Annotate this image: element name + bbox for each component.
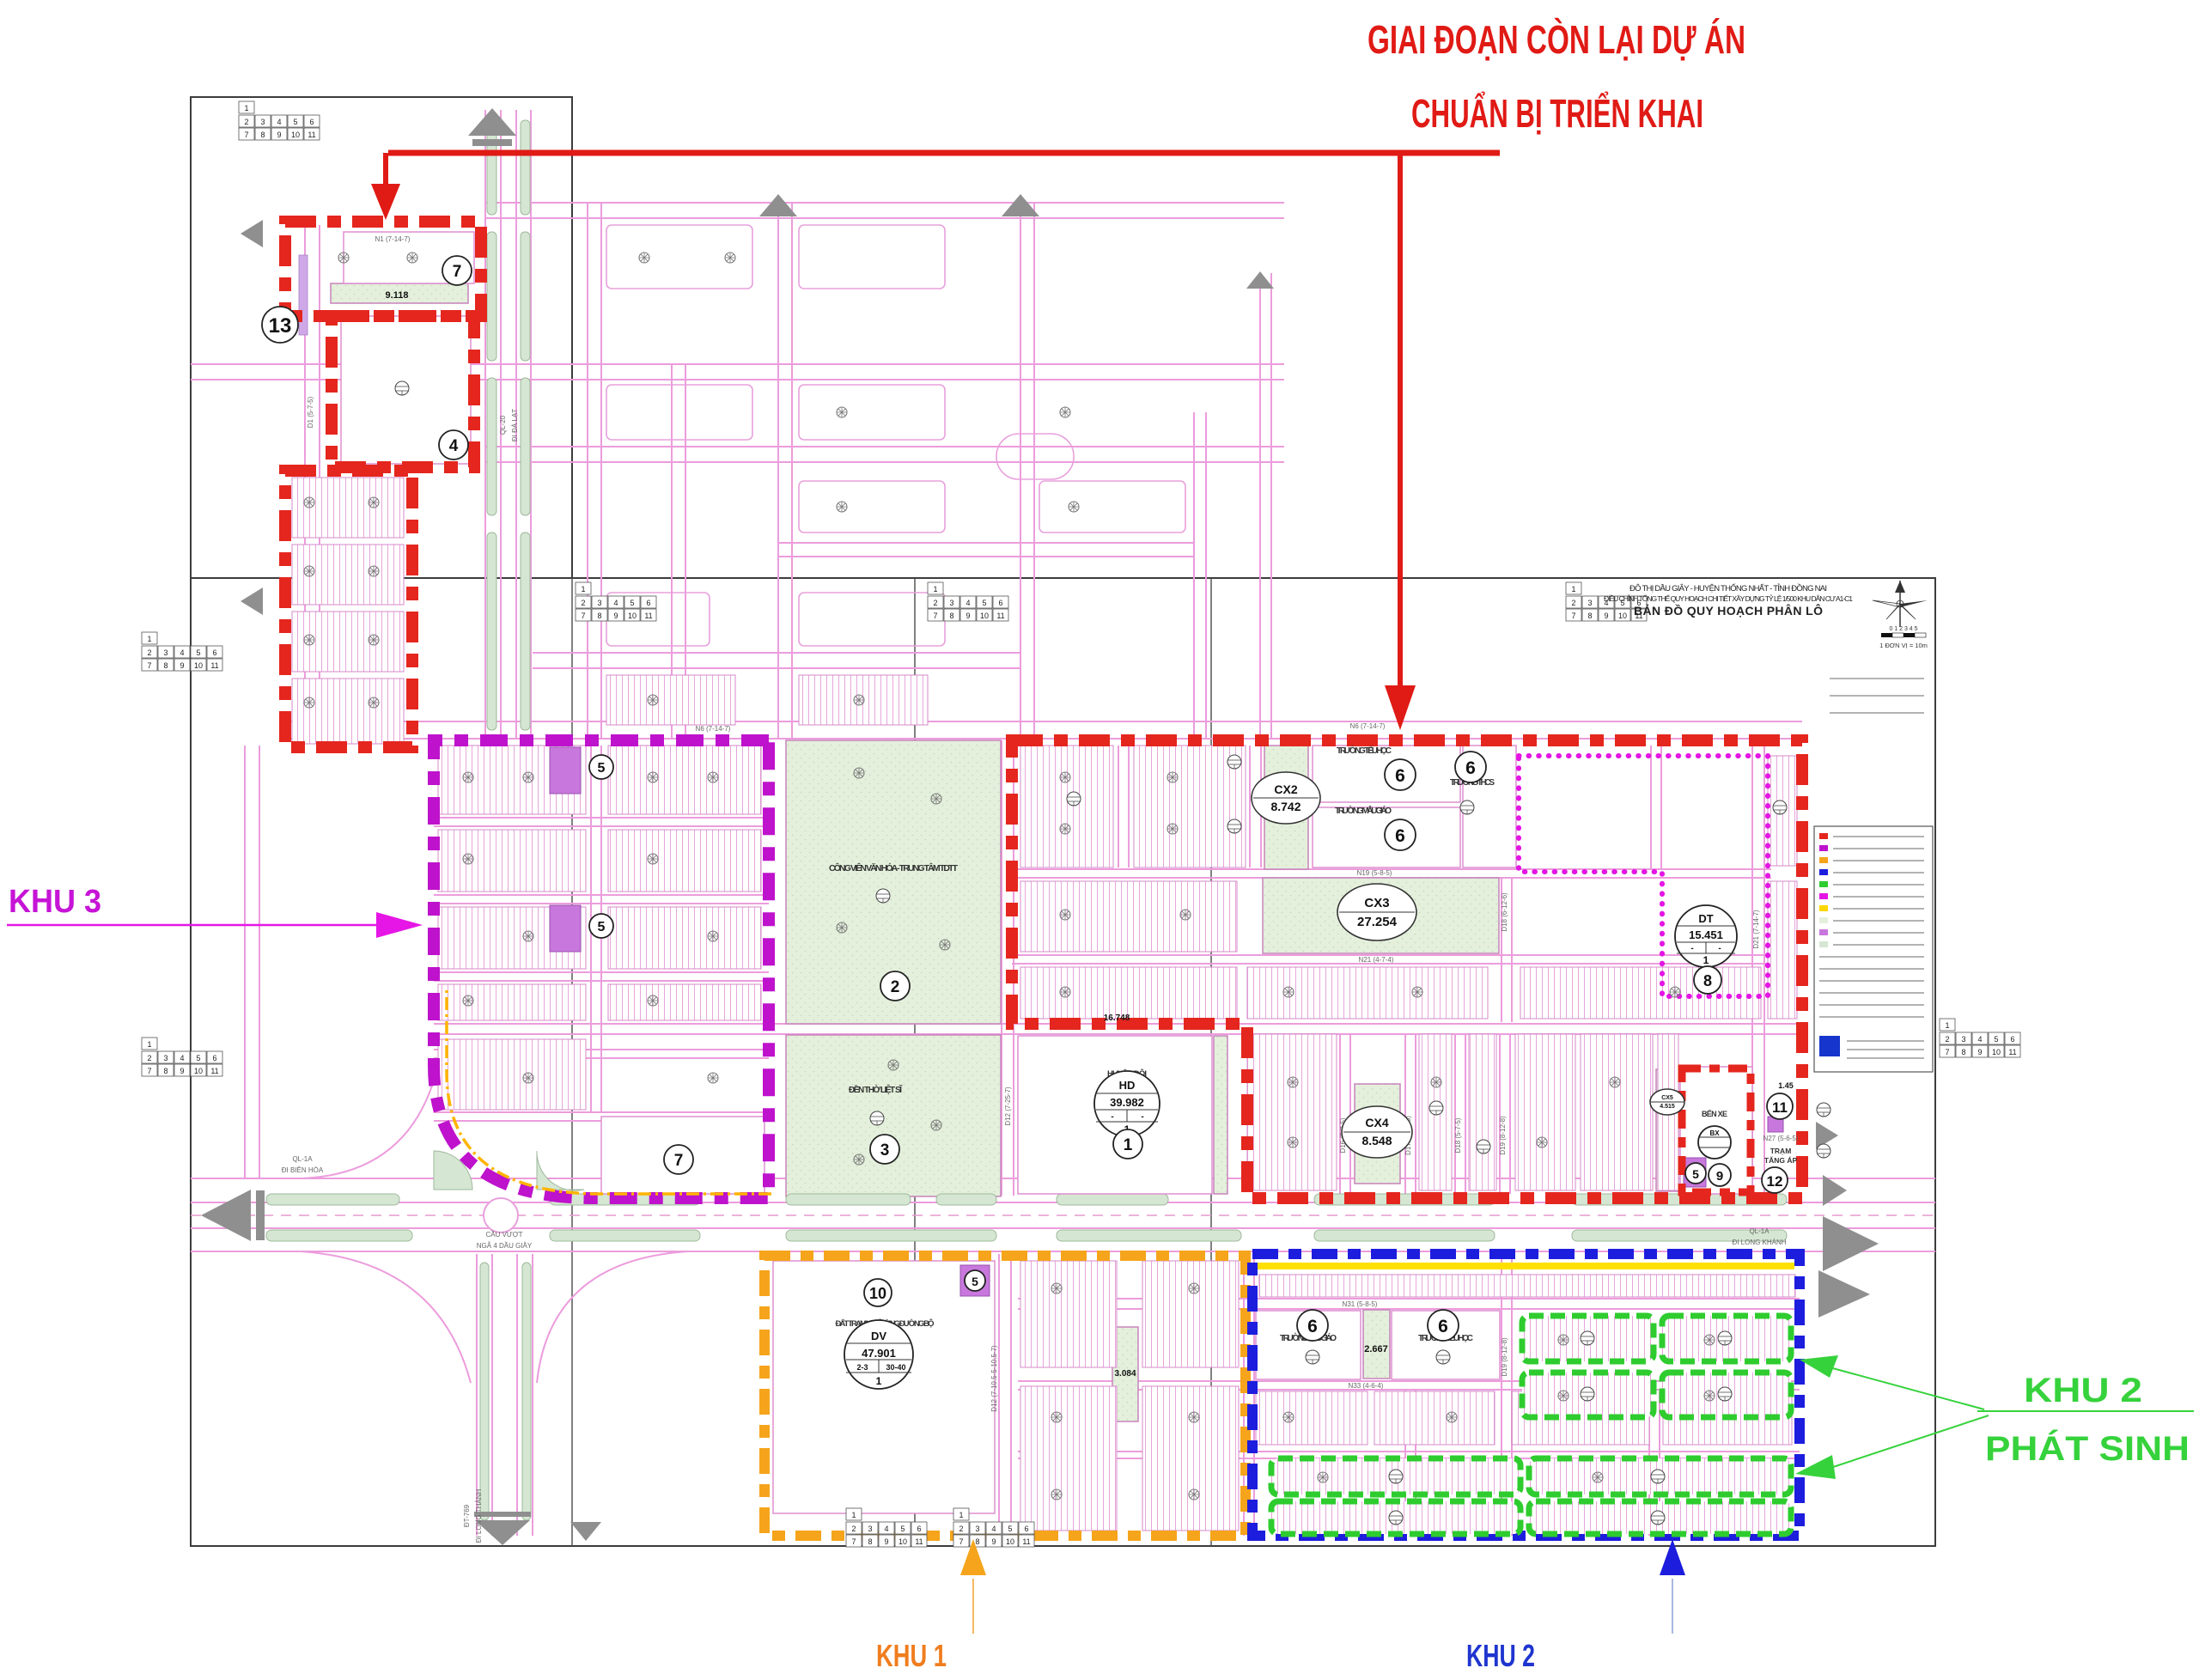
- svg-text:CX5: CX5: [1661, 1095, 1673, 1101]
- khu2-arrow-up-icon: [1660, 1539, 1685, 1575]
- road-ql1a-west-label-2: ĐI BIÊN HÒA: [282, 1166, 324, 1174]
- block-5c: 5: [1685, 1163, 1706, 1184]
- block-2: 2: [880, 971, 910, 1001]
- svg-text:5: 5: [1692, 1167, 1699, 1181]
- title-block-line3: BẢN ĐỒ QUY HOẠCH PHÂN LÔ: [1634, 603, 1823, 618]
- street-d19b-label: D19 (8-12-8): [1501, 1337, 1508, 1377]
- area-2667-label: 2.667: [1364, 1344, 1388, 1354]
- dim-145-label: 1.45: [1778, 1081, 1794, 1090]
- street-n1-label: N1 (7-14-7): [375, 235, 411, 243]
- svg-text:DV: DV: [871, 1330, 886, 1342]
- notes-lines: [1830, 679, 1924, 713]
- parcel-cx5: CX5 4.515: [1650, 1089, 1684, 1115]
- svg-text:CX2: CX2: [1274, 782, 1297, 796]
- arrow-up-icon: [1246, 271, 1274, 289]
- khu2-label: KHU 2: [1466, 1638, 1535, 1673]
- overpass-label-1: CẦU VƯỢT: [485, 1230, 522, 1239]
- svg-text:CX4: CX4: [1365, 1116, 1388, 1129]
- arrow-down-icon: [570, 1522, 601, 1541]
- title-block-line1: ĐÔ THỊ DẦU GIÂY - HUYỆN THỐNG NHẤT - TỈN…: [1629, 583, 1827, 593]
- legend-box: [1814, 826, 1933, 1072]
- magenta-dotted-zone: [1519, 756, 1768, 996]
- svg-text:6: 6: [309, 118, 314, 126]
- svg-text:6: 6: [1307, 1317, 1318, 1336]
- arrow-down-zone-a-icon: [371, 184, 400, 220]
- svg-text:HD: HD: [1119, 1079, 1136, 1092]
- khu2ps-leader-lower: [1828, 1415, 1989, 1469]
- svg-text:6: 6: [1438, 1317, 1448, 1336]
- svg-text:8: 8: [260, 131, 265, 139]
- block-9: 9: [1709, 1164, 1731, 1186]
- block-6c: 6: [1455, 752, 1486, 782]
- svg-text:13: 13: [269, 314, 292, 338]
- road-ql1a-east-label-2: ĐI LONG KHÁNH: [1732, 1239, 1786, 1246]
- svg-text:DT: DT: [1698, 912, 1713, 925]
- svg-text:5: 5: [598, 761, 606, 776]
- arrow-left-icon: [241, 587, 263, 615]
- interchange-green-corner: [537, 1151, 584, 1190]
- park-label: CÔNG VIÊN VĂN HÓA - TRUNG TÂM TDTT: [829, 862, 959, 873]
- ql20-verges: [487, 120, 530, 730]
- parcel-dv: DV 47.901 2-3 30-40 1: [844, 1320, 913, 1389]
- overpass-label-2: NGÃ 4 DẦU GIÂY: [477, 1241, 533, 1250]
- primary-school-top-label: TRƯỜNG TIỂU HỌC: [1337, 745, 1392, 756]
- street-d19a-label: D19 (8-12-8): [1499, 1116, 1507, 1155]
- sheet-index-table: 1 23456 7891011: [239, 101, 320, 140]
- khu2-phat-sinh-label-1: KHU 2: [2024, 1372, 2142, 1409]
- khu2-phat-sinh-label-2: PHÁT SINH: [1985, 1429, 2190, 1468]
- block-6e: 6: [1428, 1310, 1459, 1341]
- parcel-dt: DT 15.451 - - 1: [1675, 905, 1737, 967]
- block-5b: 5: [589, 914, 613, 938]
- svg-text:-: -: [1690, 944, 1693, 953]
- kindergarten-top-label: TRƯỜNG MẪU GIÁO: [1335, 805, 1392, 816]
- svg-text:4: 4: [277, 118, 281, 126]
- svg-text:1: 1: [244, 104, 248, 113]
- street-d1-label: D1 (5-7-5): [307, 396, 314, 428]
- svg-text:1: 1: [1124, 1136, 1133, 1154]
- svg-text:7: 7: [674, 1152, 684, 1170]
- street-n6-label-w: N6 (7-14-7): [696, 725, 731, 733]
- title-block-line2: ĐIỀU CHỈNH TỔNG THỂ QUY HOẠCH CHI TIẾT X…: [1604, 593, 1853, 603]
- parcel-cx3: CX3 27.254: [1337, 884, 1416, 940]
- tram-tang-ap-label-1: TRẠM: [1770, 1147, 1792, 1155]
- block-11: 11: [1767, 1093, 1793, 1119]
- svg-text:2: 2: [244, 118, 248, 126]
- svg-text:10: 10: [291, 131, 300, 139]
- compass-icon: [1873, 581, 1928, 627]
- block-10: 10: [864, 1279, 892, 1306]
- arrow-east-avenue-icon: [1818, 1216, 1879, 1318]
- svg-text:47.901: 47.901: [862, 1347, 896, 1360]
- block-13: 13: [262, 307, 298, 343]
- street-d12b-label: D12 (7-10.5-5-10.5-7): [990, 1345, 998, 1412]
- svg-text:-: -: [1718, 944, 1721, 953]
- khu3-label: KHU 3: [9, 884, 101, 920]
- road-ql20-label-2: ĐI ĐÀ LẠT: [511, 409, 519, 441]
- street-n19-label: N19 (5-8-5): [1357, 869, 1392, 877]
- svg-text:12: 12: [1767, 1173, 1783, 1190]
- parcel-cx4: CX4 8.548: [1342, 1106, 1412, 1158]
- svg-text:BX: BX: [1709, 1129, 1720, 1137]
- project-title-line2: CHUẨN BỊ TRIỂN KHAI: [1411, 91, 1703, 136]
- svg-text:5: 5: [972, 1275, 978, 1288]
- street-n27-label: N27 (5-6-5): [1763, 1135, 1799, 1142]
- svg-text:3: 3: [880, 1141, 890, 1160]
- parcel-hd: HD 39.982 - - 1: [1094, 1071, 1160, 1136]
- block-7a: 7: [442, 256, 472, 285]
- svg-text:9: 9: [1716, 1169, 1723, 1184]
- hd-green-strip: [1214, 1036, 1227, 1194]
- khu3-arrow-icon: [376, 912, 423, 938]
- svg-text:4: 4: [449, 437, 459, 455]
- svg-text:0 1 2 3 4 5: 0 1 2 3 4 5: [1889, 626, 1917, 632]
- street-d18b-label: D18 (5-7-5): [1454, 1117, 1462, 1153]
- road-ql20-label-1: QL-20: [499, 415, 507, 435]
- road-dt769-label-2: ĐI LONG THÀNH: [475, 1489, 483, 1543]
- project-title-line1: GIAI ĐOẠN CÒN LẠI DỰ ÁN: [1368, 17, 1745, 62]
- road-ql1a-east-label-1: QL-1A: [1749, 1227, 1770, 1235]
- svg-text:7: 7: [453, 263, 462, 281]
- svg-text:30-40: 30-40: [886, 1363, 905, 1372]
- svg-text:9: 9: [277, 131, 281, 139]
- svg-text:-: -: [1111, 1112, 1113, 1122]
- svg-text:4.515: 4.515: [1660, 1104, 1675, 1110]
- block-6b: 6: [1385, 819, 1416, 850]
- svg-text:CX3: CX3: [1364, 896, 1389, 910]
- svg-text:1: 1: [876, 1375, 882, 1387]
- svg-text:11: 11: [308, 131, 315, 139]
- parcel-bx: BX: [1698, 1126, 1731, 1159]
- road-dt769-label-1: ĐT-769: [463, 1504, 471, 1527]
- arrow-right-icon: [1823, 1175, 1847, 1206]
- street-d12a-label: D12 (7-25-7): [1004, 1087, 1012, 1126]
- arrow-left-icon: [241, 220, 263, 247]
- khu2ps-arrow-upper-icon: [1800, 1355, 1838, 1378]
- svg-text:2-3: 2-3: [856, 1363, 868, 1372]
- svg-text:27.254: 27.254: [1357, 915, 1398, 929]
- street-n6-label-e: N6 (7-14-7): [1350, 722, 1386, 730]
- block-7b: 7: [664, 1145, 693, 1174]
- zoning-map-canvas: CÔNG VIÊN VĂN HÓA - TRUNG TÂM TDTT ĐỀN T…: [0, 0, 2199, 1680]
- svg-text:1: 1: [1703, 954, 1709, 966]
- khu2ps-leader-upper: [1830, 1367, 1984, 1409]
- svg-text:6: 6: [1395, 766, 1405, 786]
- svg-text:5: 5: [598, 920, 606, 934]
- svg-text:11: 11: [1772, 1099, 1788, 1116]
- block-1: 1: [1113, 1129, 1142, 1159]
- block-12: 12: [1762, 1167, 1788, 1193]
- scale-note: 1 ĐƠN VỊ = 10m: [1879, 642, 1928, 649]
- arrow-up-icon: [468, 108, 516, 146]
- block-6a: 6: [1385, 759, 1416, 790]
- roundabout: [484, 1198, 518, 1233]
- scale-bar: 0 1 2 3 4 5 1 ĐƠN VỊ = 10m: [1879, 626, 1928, 649]
- svg-text:-: -: [1141, 1112, 1143, 1122]
- svg-text:6: 6: [1395, 826, 1405, 846]
- svg-text:5: 5: [293, 118, 297, 126]
- street-n31-label: N31 (5-8-5): [1343, 1300, 1378, 1308]
- block-5d: 5: [965, 1270, 985, 1291]
- block-5a: 5: [589, 755, 613, 779]
- svg-text:15.451: 15.451: [1689, 928, 1723, 941]
- svg-text:8: 8: [1703, 972, 1712, 989]
- area-9118-label: 9.118: [386, 290, 409, 301]
- area-3084-label: 3.084: [1114, 1369, 1136, 1379]
- dt769-verges: [480, 1263, 531, 1520]
- svg-text:10: 10: [869, 1285, 886, 1302]
- memorial-block: [786, 1035, 1001, 1196]
- svg-text:2: 2: [891, 978, 900, 996]
- khu2-yellow-strip: [1258, 1263, 1794, 1269]
- svg-text:8.742: 8.742: [1270, 800, 1301, 813]
- memorial-label: ĐỀN THỜ LIỆT SĨ: [849, 1084, 903, 1095]
- street-d21-label: D21 (7-14-7): [1752, 910, 1760, 949]
- dim-16748-label: 16.748: [1104, 1013, 1130, 1023]
- arrow-down-zone-b-icon: [1385, 685, 1416, 730]
- block-3: 3: [870, 1135, 899, 1164]
- block-8: 8: [1694, 966, 1721, 994]
- street-n21-label: N21 (4-7-4): [1359, 956, 1394, 964]
- street-d18a-label: D18 (6-12-6): [1501, 892, 1508, 932]
- svg-text:7: 7: [244, 131, 248, 139]
- khu1-label: KHU 1: [876, 1638, 947, 1673]
- block-6d: 6: [1297, 1310, 1328, 1341]
- street-n33-label: N33 (4-6-4): [1349, 1382, 1384, 1390]
- ben-xe-label: BẾN XE: [1702, 1110, 1727, 1118]
- road-ql1a-west-label-1: QL-1A: [292, 1155, 313, 1163]
- tram-tang-ap-label-2: TĂNG ÁP: [1764, 1156, 1798, 1165]
- block-4: 4: [439, 430, 468, 460]
- svg-text:39.982: 39.982: [1110, 1096, 1144, 1109]
- svg-text:3: 3: [260, 118, 265, 126]
- plan-map-page: CÔNG VIÊN VĂN HÓA - TRUNG TÂM TDTT ĐỀN T…: [0, 0, 2199, 1680]
- svg-text:6: 6: [1465, 758, 1476, 778]
- svg-text:8.548: 8.548: [1361, 1134, 1392, 1147]
- legend-logo: [1819, 1036, 1840, 1056]
- parcel-cx2: CX2 8.742: [1252, 772, 1320, 824]
